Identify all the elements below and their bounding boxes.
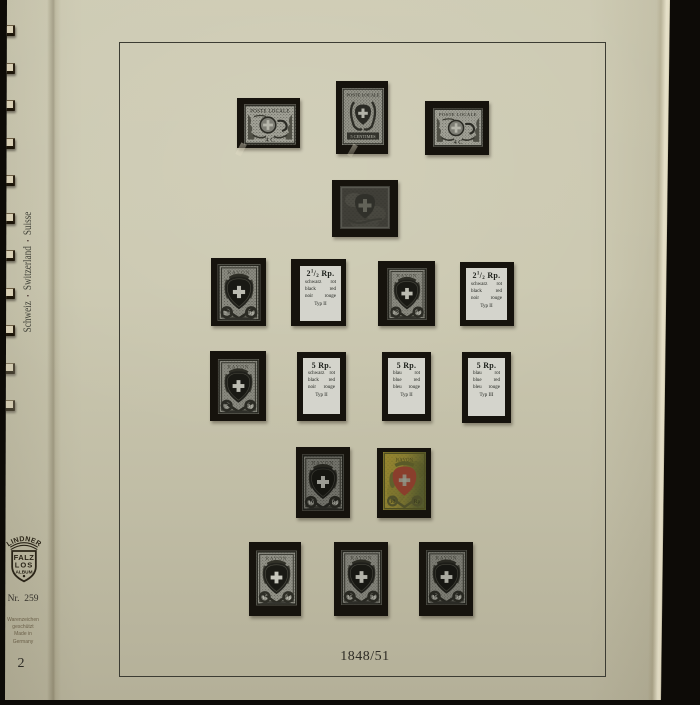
svg-text:Rp: Rp (415, 310, 421, 316)
svg-text:10: 10 (308, 500, 314, 506)
svg-text:15: 15 (262, 595, 268, 601)
svg-text:LOS: LOS (15, 561, 33, 570)
svg-text:2½: 2½ (393, 309, 400, 316)
svg-text:5: 5 (225, 404, 228, 410)
svg-text:Rp: Rp (247, 404, 254, 410)
svg-text:Rp: Rp (370, 594, 377, 600)
svg-text:15: 15 (432, 594, 438, 600)
svg-text:ALBUM: ALBUM (15, 570, 32, 576)
svg-text:Rp: Rp (285, 595, 292, 601)
svg-text:Rp: Rp (455, 594, 462, 600)
svg-text:15: 15 (347, 594, 353, 600)
svg-text:Rp: Rp (248, 310, 255, 316)
svg-text:2½: 2½ (223, 309, 230, 316)
svg-text:Rp: Rp (332, 500, 339, 506)
